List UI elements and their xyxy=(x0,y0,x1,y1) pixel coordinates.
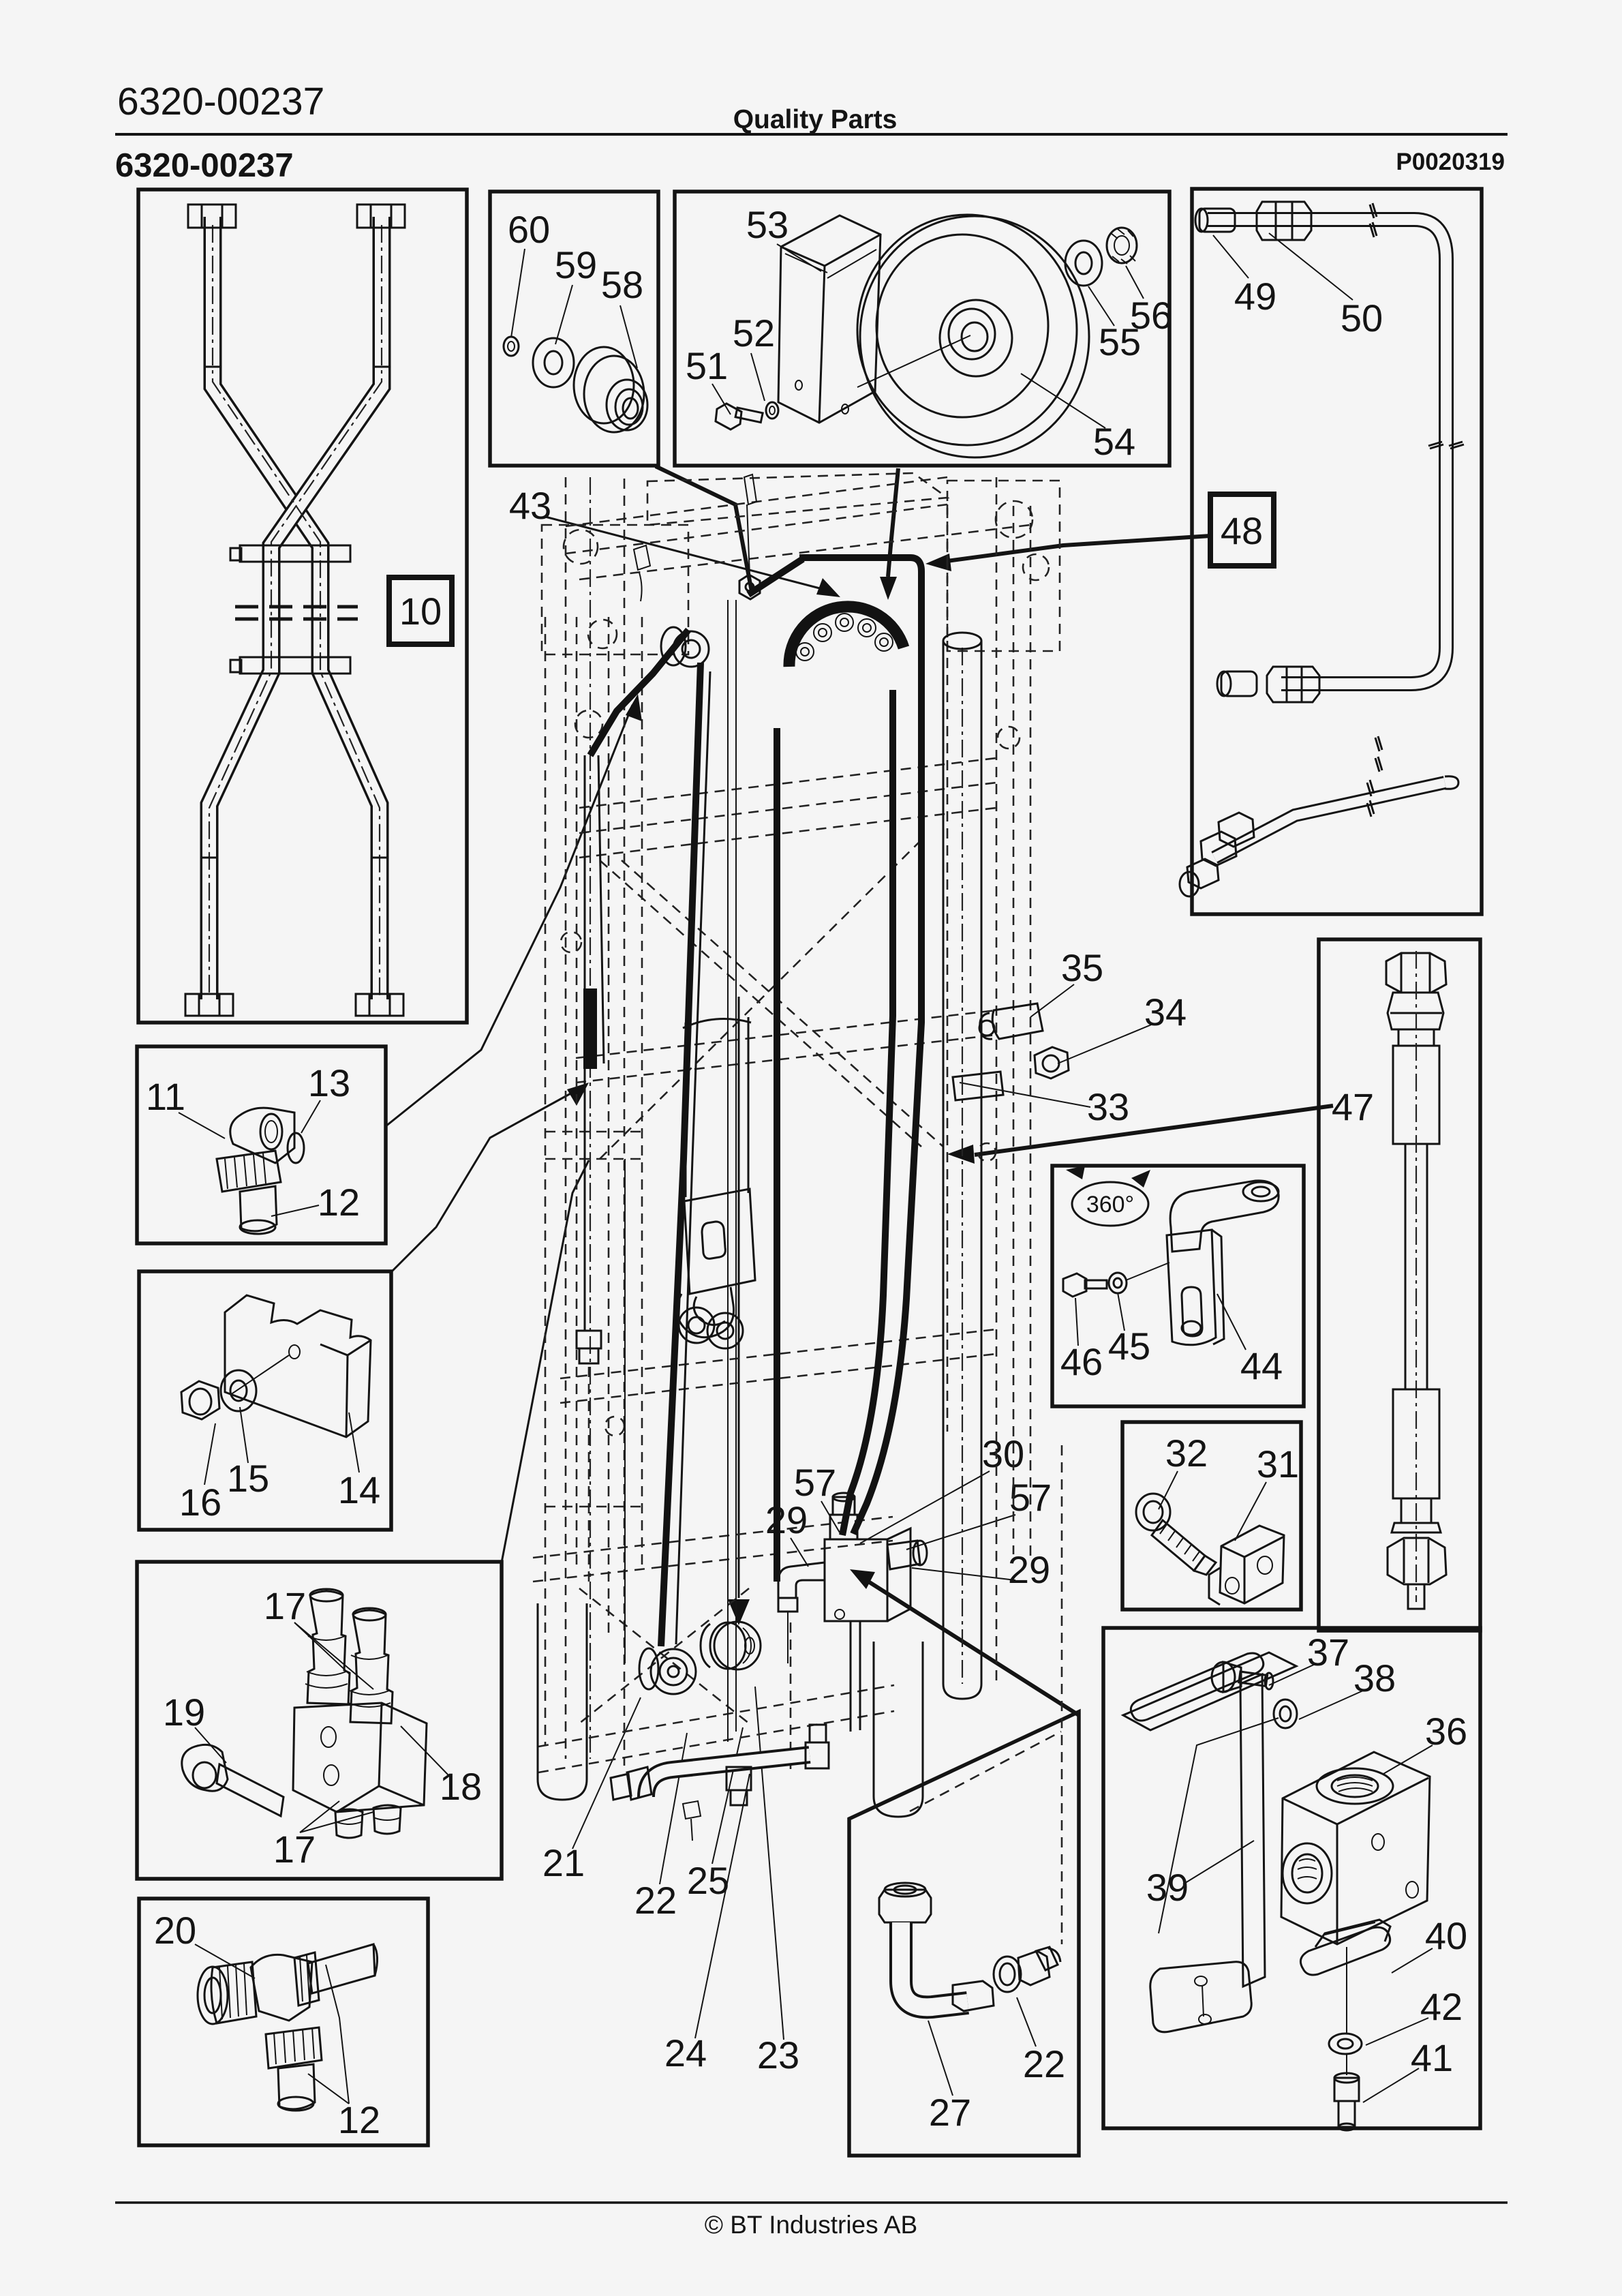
svg-text:14: 14 xyxy=(338,1468,380,1511)
svg-text:43: 43 xyxy=(509,484,551,527)
svg-text:18: 18 xyxy=(440,1765,482,1808)
svg-text:27: 27 xyxy=(929,2091,971,2134)
svg-text:12: 12 xyxy=(338,2098,380,2141)
svg-text:12: 12 xyxy=(318,1181,360,1224)
svg-text:30: 30 xyxy=(982,1432,1024,1475)
svg-text:55: 55 xyxy=(1099,320,1141,363)
svg-text:22: 22 xyxy=(1023,2042,1065,2085)
svg-text:35: 35 xyxy=(1061,946,1103,989)
svg-text:57: 57 xyxy=(794,1461,836,1504)
svg-text:53: 53 xyxy=(746,203,789,246)
svg-text:6320-00237: 6320-00237 xyxy=(115,147,294,184)
svg-text:16: 16 xyxy=(179,1481,221,1524)
svg-text:23: 23 xyxy=(757,2034,799,2076)
svg-text:46: 46 xyxy=(1060,1340,1103,1383)
svg-text:32: 32 xyxy=(1165,1432,1208,1475)
svg-text:51: 51 xyxy=(686,344,728,387)
svg-text:29: 29 xyxy=(765,1498,808,1541)
svg-text:31: 31 xyxy=(1257,1442,1299,1485)
svg-text:42: 42 xyxy=(1420,1985,1463,2028)
svg-text:52: 52 xyxy=(733,312,775,354)
svg-text:P0020319: P0020319 xyxy=(1396,149,1505,175)
svg-text:34: 34 xyxy=(1144,991,1187,1033)
svg-text:15: 15 xyxy=(227,1457,269,1500)
svg-text:24: 24 xyxy=(664,2031,707,2074)
svg-text:20: 20 xyxy=(154,1909,196,1952)
svg-text:54: 54 xyxy=(1093,420,1135,463)
svg-text:13: 13 xyxy=(308,1061,350,1104)
svg-text:17: 17 xyxy=(273,1828,316,1871)
svg-text:40: 40 xyxy=(1425,1914,1467,1957)
svg-text:59: 59 xyxy=(555,243,597,286)
svg-text:© BT Industries AB: © BT Industries AB xyxy=(705,2211,917,2239)
svg-text:21: 21 xyxy=(542,1841,585,1884)
svg-text:58: 58 xyxy=(601,263,643,306)
svg-text:47: 47 xyxy=(1332,1085,1374,1128)
svg-text:60: 60 xyxy=(508,208,550,251)
svg-text:11: 11 xyxy=(146,1075,185,1118)
svg-text:44: 44 xyxy=(1240,1344,1283,1387)
svg-text:22: 22 xyxy=(634,1879,677,1922)
svg-text:6320-00237: 6320-00237 xyxy=(117,80,324,123)
svg-text:48: 48 xyxy=(1221,509,1263,552)
svg-text:49: 49 xyxy=(1234,275,1276,318)
svg-text:Quality Parts: Quality Parts xyxy=(733,105,898,134)
svg-text:45: 45 xyxy=(1108,1325,1150,1368)
svg-text:37: 37 xyxy=(1307,1631,1349,1674)
svg-text:29: 29 xyxy=(1008,1548,1050,1591)
svg-text:50: 50 xyxy=(1341,297,1383,339)
svg-text:25: 25 xyxy=(687,1859,729,1902)
svg-text:10: 10 xyxy=(399,590,442,633)
svg-text:41: 41 xyxy=(1411,2036,1453,2079)
svg-text:17: 17 xyxy=(264,1584,306,1627)
svg-text:19: 19 xyxy=(163,1691,205,1734)
svg-text:38: 38 xyxy=(1353,1657,1396,1700)
svg-text:33: 33 xyxy=(1087,1085,1129,1128)
svg-text:360°: 360° xyxy=(1086,1192,1134,1218)
